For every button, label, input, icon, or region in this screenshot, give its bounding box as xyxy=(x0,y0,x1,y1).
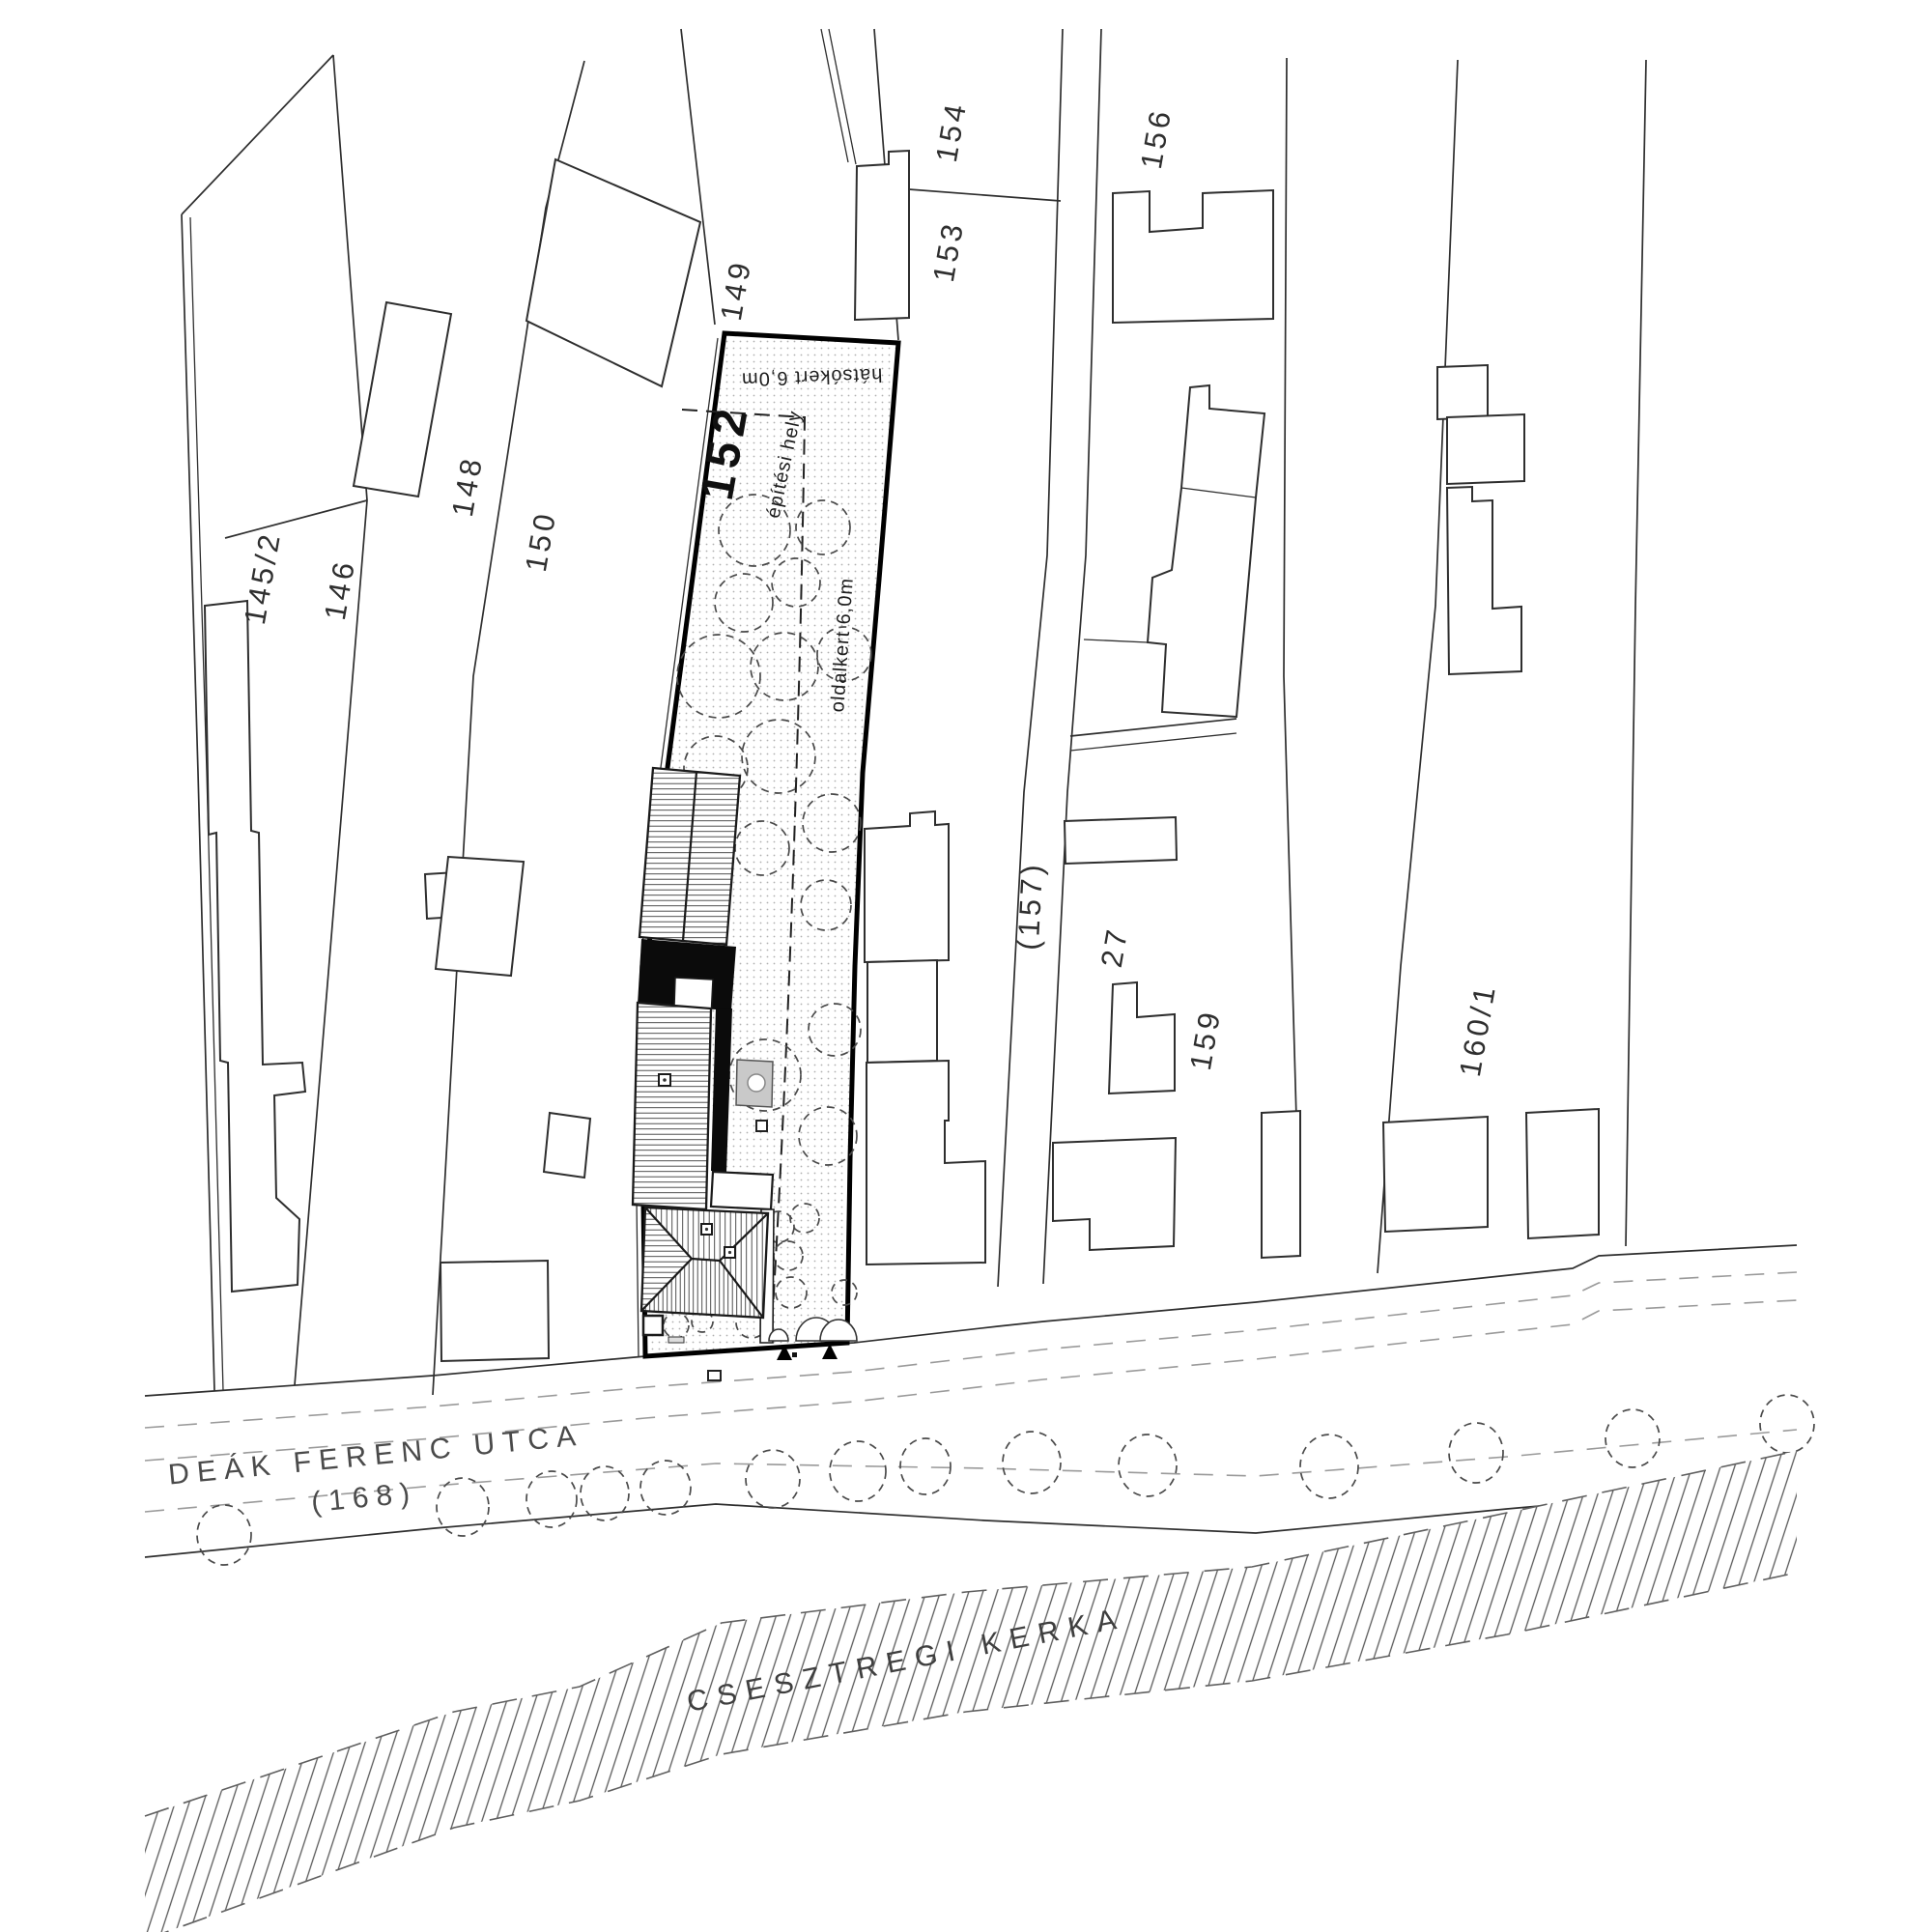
building-27-barn xyxy=(1065,817,1177,864)
entrance-dot-marker xyxy=(792,1352,797,1357)
building-150-middle xyxy=(436,857,524,976)
hip-roof-house xyxy=(641,1207,768,1318)
building-154-house xyxy=(855,151,909,320)
building-156-north-L xyxy=(1113,190,1273,323)
building-27-front xyxy=(1053,1138,1176,1250)
terrace-table xyxy=(748,1074,765,1092)
street-tree xyxy=(746,1450,800,1508)
boundary-153-154 xyxy=(909,189,1061,201)
lane-157-east-edge xyxy=(1043,29,1101,1284)
building-27-house xyxy=(1109,982,1175,1094)
boundary-diagonal-nw xyxy=(182,55,333,214)
building-150-front xyxy=(440,1261,549,1361)
chimney-dot xyxy=(705,1228,708,1231)
street-tree xyxy=(1605,1409,1660,1467)
river-csesztregi-kerka xyxy=(145,1451,1797,1932)
building-153-house-chimney xyxy=(865,811,949,962)
chimney-dot xyxy=(663,1078,667,1082)
plot-152 xyxy=(633,333,898,1360)
parcel-label-27: 27 xyxy=(1094,923,1135,970)
boundary-lane-to-building xyxy=(1084,639,1148,642)
building-145-long-stepped xyxy=(205,601,305,1292)
street-number-label: (168) xyxy=(310,1477,419,1519)
building-153-front xyxy=(867,1061,985,1264)
street-tree xyxy=(1003,1432,1061,1493)
building-160-L xyxy=(1447,487,1521,674)
street-utility-marker xyxy=(708,1371,721,1380)
boundary-156-27-a xyxy=(1070,719,1236,736)
building-148-slab xyxy=(354,302,451,497)
parcel-label-157: (157) xyxy=(1011,860,1050,951)
parcel-label-150: 150 xyxy=(519,508,563,575)
street-tree xyxy=(1119,1435,1177,1496)
parcel-label-160-1: 160/1 xyxy=(1453,980,1502,1079)
parcel-label-153: 153 xyxy=(926,218,971,285)
building-160-front-a xyxy=(1383,1117,1488,1232)
street-tree xyxy=(1449,1423,1503,1483)
boundary-149-153-a xyxy=(821,29,848,162)
chimney-dot xyxy=(728,1251,731,1254)
front-step xyxy=(668,1337,684,1343)
street-tree xyxy=(197,1505,251,1565)
boundary-146-148 xyxy=(295,55,367,1385)
parcel-label-159: 159 xyxy=(1183,1007,1228,1073)
boundary-156-27-b xyxy=(1070,733,1236,751)
extension-white xyxy=(711,1172,773,1209)
street-dashed-line-2 xyxy=(145,1300,1797,1461)
street-tree xyxy=(581,1466,629,1520)
boundary-160-east xyxy=(1626,60,1646,1246)
east-buildings xyxy=(855,151,1599,1264)
street-tree xyxy=(1300,1435,1358,1498)
west-buildings xyxy=(205,159,700,1361)
boundary-146-top xyxy=(225,500,367,538)
building-150-shed xyxy=(544,1113,590,1178)
existing-house-hatched xyxy=(633,1003,711,1209)
parcel-label-145-2: 145/2 xyxy=(238,528,287,627)
site-plan-drawing: 145/2 146 148 150 149 152 154 153 156 (1… xyxy=(0,0,1932,1932)
boundary-160-west xyxy=(1378,60,1458,1273)
parcel-label-146: 146 xyxy=(318,556,362,623)
building-156-complex xyxy=(1148,385,1264,717)
street-tree xyxy=(1760,1395,1814,1453)
street-dashed-line-1 xyxy=(145,1272,1797,1428)
front-yard-marker xyxy=(643,1316,663,1335)
boundary-149-153-b xyxy=(829,29,856,164)
street-north-edge xyxy=(145,1245,1797,1396)
building-160-upper xyxy=(1437,365,1488,419)
building-160-front-b xyxy=(1526,1109,1599,1238)
parcel-label-154: 154 xyxy=(929,99,974,165)
river-band-hatch xyxy=(145,1451,1797,1932)
street-tree xyxy=(830,1441,886,1501)
site-plan-page: 145/2 146 148 150 149 152 154 153 156 (1… xyxy=(0,0,1932,1932)
building-150-upper xyxy=(526,159,700,386)
parcel-label-156: 156 xyxy=(1134,105,1179,172)
parcel-label-149: 149 xyxy=(714,257,758,324)
building-160-square xyxy=(1447,414,1524,484)
building-153-middle xyxy=(867,960,937,1063)
building-159-slab xyxy=(1262,1111,1300,1258)
parcel-label-148: 148 xyxy=(445,453,490,520)
boundary-27-159-east xyxy=(1284,58,1300,1255)
garden-marker xyxy=(756,1121,767,1131)
